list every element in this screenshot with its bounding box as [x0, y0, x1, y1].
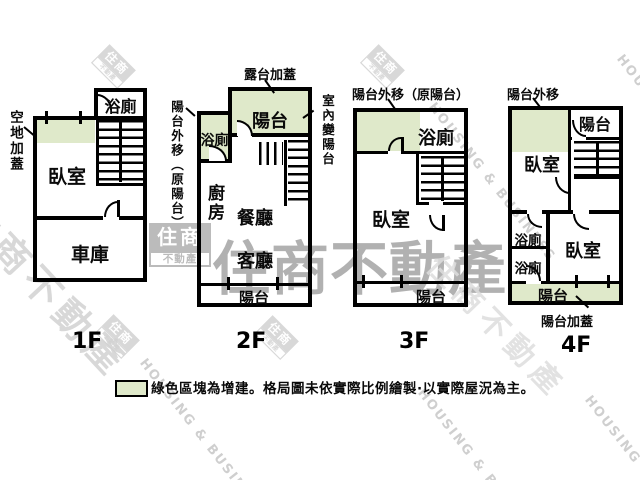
floor-plan-sheet: 住商不動產 住商 不動產 住商 不動產 住商 不動產 住商 不動產 住商 不動產…	[0, 0, 640, 480]
annotation-balcony-moved-2f: 陽台外移（原陽台）	[167, 100, 186, 231]
room-label-bath-upper-4f: 浴廁	[510, 229, 546, 249]
wall-segment	[119, 120, 122, 182]
annotation-terrace-cover-2f: 露台加蓋	[244, 64, 296, 83]
room-label-bath-lower-4f: 浴廁	[510, 257, 546, 277]
room-label-bedroom-1f: 臥室	[40, 162, 94, 189]
wall-segment	[586, 137, 623, 140]
wall-segment	[357, 151, 388, 154]
legend-text: 綠色區塊為增建。格局圖未依實際比例繪製·以實際屋況為主。	[151, 377, 535, 397]
room-label-balcony-bottom-4f: 陽台	[527, 285, 579, 306]
wall-segment	[441, 156, 444, 201]
wall-segment	[401, 151, 464, 154]
annotation-open-land-cover-1f: 空地加蓋	[5, 110, 25, 172]
room-label-balcony-top-4f: 陽台	[570, 111, 620, 135]
slogan-watermark: HOUSING & BUSINESS	[414, 386, 547, 480]
brand-logo-bottom: 不動產	[149, 251, 211, 267]
room-label-bedroom-bottom-4f: 臥室	[555, 237, 611, 263]
door-leaf	[401, 137, 404, 152]
room-label-bedroom-top-4f: 臥室	[515, 151, 569, 177]
wall-segment	[357, 281, 464, 284]
wall-segment	[546, 210, 550, 284]
room-label-balcony-3f: 陽台	[407, 286, 455, 307]
wall-segment	[284, 140, 287, 206]
annotation-indoor-to-balcony-2f: 室內變陽台	[318, 94, 337, 167]
wall-segment	[589, 210, 619, 214]
annotation-balcony-cover-4f: 陽台加蓋	[541, 311, 593, 330]
wall-segment	[574, 176, 619, 179]
annotation-balcony-moved-3f: 陽台外移（原陽台）	[352, 84, 469, 103]
room-label-bath-1f: 浴廁	[98, 93, 143, 117]
wall-segment	[119, 216, 143, 220]
wall-segment	[596, 141, 599, 178]
room-label-bath-2f: 浴廁	[199, 130, 230, 150]
wall-segment	[37, 216, 103, 220]
room-label-kitchen-2f: 廚房	[202, 184, 227, 222]
floor-label-3f: 3F	[399, 329, 429, 354]
wall-opening-tick	[607, 275, 610, 288]
room-label-garage-1f: 車庫	[62, 240, 118, 267]
floor-label-4f: 4F	[561, 333, 591, 358]
wall-opening-tick	[362, 275, 365, 288]
wall-segment	[443, 202, 464, 205]
annotation-leader	[185, 107, 195, 117]
floor-label-1f: 1F	[72, 329, 102, 354]
room-label-bedroom-3f: 臥室	[364, 205, 418, 232]
room-label-bath-3f: 浴廁	[411, 124, 461, 150]
staircase-2f-lower	[288, 140, 308, 206]
wall-segment	[512, 210, 527, 214]
wall-opening-tick	[400, 275, 403, 288]
wall-segment	[201, 283, 308, 286]
slogan-watermark: HOUSING & BUSINESS	[136, 356, 269, 480]
slogan-watermark: HOUSING & BUSINESS	[581, 393, 640, 480]
wall-opening-tick	[79, 111, 82, 124]
room-label-balcony-top-2f: 陽台	[232, 107, 308, 133]
staircase-2f-upper	[259, 142, 283, 165]
wall-segment	[96, 183, 143, 186]
wall-opening-tick	[227, 277, 230, 290]
legend-green-swatch	[115, 380, 148, 397]
wall-segment	[308, 87, 312, 307]
wall-segment	[416, 154, 419, 205]
room-label-dining-2f: 餐廳	[232, 204, 278, 230]
brand-logo-watermark: 住商 不動產	[90, 44, 136, 90]
wall-opening-tick	[45, 111, 48, 124]
wall-segment	[512, 281, 526, 284]
room-label-living-2f: 客廳	[232, 247, 278, 273]
room-label-balcony-bottom-2f: 陽台	[231, 287, 277, 308]
floor-label-2f: 2F	[236, 329, 266, 354]
wall-segment	[252, 133, 310, 137]
